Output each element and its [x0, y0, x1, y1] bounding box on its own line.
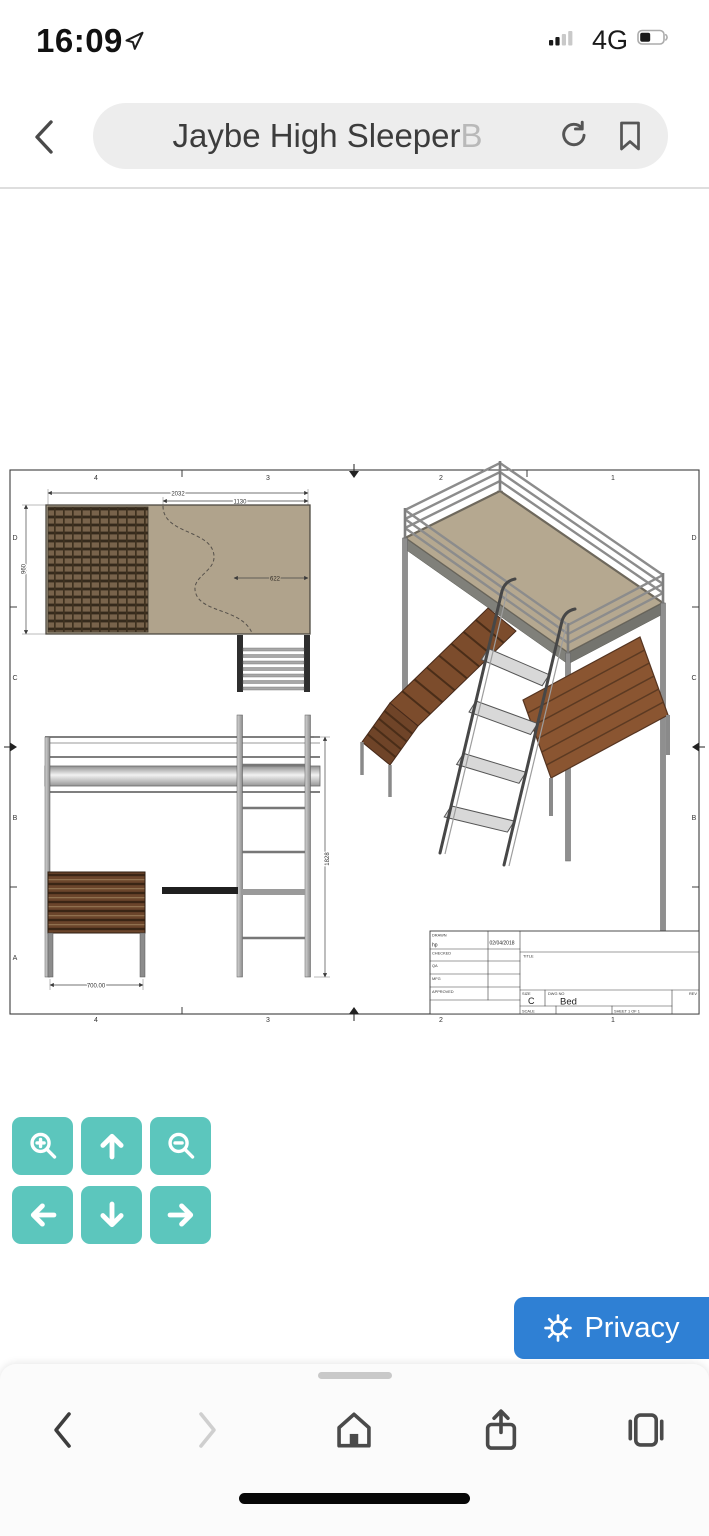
pan-up-button[interactable] [81, 1117, 142, 1175]
svg-text:DRAWN: DRAWN [432, 933, 447, 938]
svg-text:QA: QA [432, 963, 438, 968]
arrow-left-icon [26, 1198, 60, 1232]
zoom-in-icon [26, 1129, 60, 1163]
svg-text:1: 1 [611, 1017, 615, 1024]
svg-text:MFG: MFG [432, 976, 441, 981]
home-indicator[interactable] [239, 1493, 470, 1504]
navbar-divider [0, 187, 709, 189]
svg-text:D: D [12, 535, 17, 542]
chevron-left-icon [30, 117, 60, 157]
svg-text:TITLE: TITLE [523, 954, 534, 959]
svg-text:622: 622 [270, 576, 281, 582]
gear-icon [543, 1313, 573, 1343]
privacy-label: Privacy [584, 1312, 679, 1345]
svg-text:A: A [13, 955, 18, 962]
battery-icon [637, 29, 671, 46]
elevation-desk [162, 887, 238, 894]
signal-strength-icon [549, 30, 575, 46]
svg-text:hp: hp [432, 943, 438, 949]
svg-text:REV: REV [689, 991, 697, 996]
status-time: 16:09 [36, 22, 123, 60]
svg-text:02/04/2018: 02/04/2018 [490, 941, 515, 947]
svg-text:2: 2 [439, 475, 443, 482]
cad-drawing-sheet: 4 3 2 1 4 3 2 1 D C B A D C B A 2032 113… [0, 463, 709, 1023]
arrow-down-icon [95, 1198, 129, 1232]
chevron-left-icon [50, 1409, 76, 1451]
home-icon [332, 1408, 376, 1452]
sheet-drag-handle[interactable] [318, 1372, 392, 1379]
svg-text:B: B [692, 815, 697, 822]
zoom-out-button[interactable] [150, 1117, 211, 1175]
browser-back-button[interactable] [30, 112, 70, 162]
svg-text:SHEET 1 OF 1: SHEET 1 OF 1 [614, 1009, 640, 1014]
svg-text:1: 1 [611, 475, 615, 482]
svg-text:Bed: Bed [560, 997, 577, 1008]
zoom-out-icon [164, 1129, 198, 1163]
svg-text:C: C [528, 996, 535, 1006]
toolbar-back-button[interactable] [41, 1406, 85, 1454]
pan-left-button[interactable] [12, 1186, 73, 1244]
toolbar-tabs-button[interactable] [624, 1406, 668, 1454]
zoom-in-button[interactable] [12, 1117, 73, 1175]
toolbar-share-button[interactable] [479, 1406, 523, 1454]
svg-text:B: B [13, 815, 18, 822]
svg-text:2032: 2032 [171, 491, 185, 497]
share-icon [479, 1407, 523, 1453]
svg-text:4: 4 [94, 1017, 98, 1024]
toolbar-forward-button[interactable] [185, 1406, 229, 1454]
pan-right-button[interactable] [150, 1186, 211, 1244]
tabs-icon [624, 1408, 668, 1452]
toolbar-home-button[interactable] [332, 1406, 376, 1454]
svg-text:D: D [691, 535, 696, 542]
address-bar[interactable]: Jaybe High SleeperB [93, 103, 668, 169]
svg-text:1828: 1828 [325, 852, 331, 866]
bookmark-button[interactable] [614, 119, 646, 153]
svg-text:4: 4 [94, 475, 98, 482]
address-text-truncated: B [461, 117, 483, 154]
chevron-right-icon [194, 1409, 220, 1451]
svg-text:SCALE: SCALE [522, 1009, 535, 1014]
svg-text:2: 2 [439, 1017, 443, 1024]
svg-text:CHECKED: CHECKED [432, 951, 451, 956]
svg-text:3: 3 [266, 475, 270, 482]
network-type-label: 4G [592, 25, 628, 56]
svg-text:C: C [12, 675, 17, 682]
arrow-up-icon [95, 1129, 129, 1163]
svg-text:700.00: 700.00 [87, 983, 106, 989]
address-text: Jaybe High SleeperB [123, 117, 532, 155]
arrow-right-icon [164, 1198, 198, 1232]
reload-button[interactable] [556, 119, 590, 153]
pan-down-button[interactable] [81, 1186, 142, 1244]
bookmark-icon [614, 119, 646, 153]
location-arrow-icon [124, 30, 145, 51]
reload-icon [556, 119, 590, 153]
title-block: DRAWN hp 02/04/2018 CHECKED QA MFG APPRO… [430, 931, 699, 1014]
svg-text:DWG NO: DWG NO [548, 991, 564, 996]
privacy-button[interactable]: Privacy [514, 1297, 709, 1359]
svg-text:APPROVED: APPROVED [432, 989, 454, 994]
svg-text:3: 3 [266, 1017, 270, 1024]
svg-text:C: C [691, 675, 696, 682]
svg-text:960: 960 [22, 563, 28, 574]
